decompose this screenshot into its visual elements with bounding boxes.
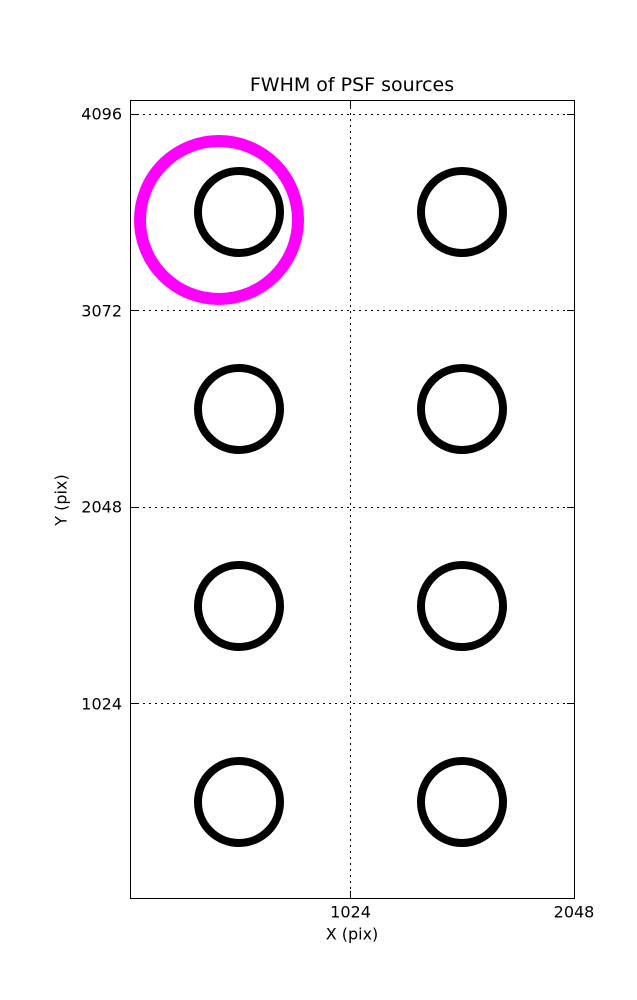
plot-area — [130, 100, 575, 899]
psf-circle — [194, 757, 284, 847]
chart-title: FWHM of PSF sources — [250, 74, 454, 96]
x-tick-bottom — [574, 891, 575, 898]
y-gridline — [131, 703, 574, 704]
highlight-circle — [134, 135, 304, 305]
y-tick-label: 4096 — [81, 105, 122, 124]
psf-circle — [194, 364, 284, 454]
x-gridline — [350, 101, 351, 898]
x-tick-top — [574, 101, 575, 108]
x-tick-label: 1024 — [330, 903, 371, 922]
y-axis-label: Y (pix) — [52, 474, 71, 525]
psf-circle — [194, 561, 284, 651]
y-tick-label: 3072 — [81, 301, 122, 320]
x-tick-top — [350, 101, 351, 108]
y-tick-left — [131, 310, 138, 311]
x-gridline — [574, 101, 575, 898]
psf-circle — [417, 757, 507, 847]
y-gridline — [131, 507, 574, 508]
y-gridline — [131, 310, 574, 311]
psf-circle — [417, 561, 507, 651]
y-gridline — [131, 114, 574, 115]
x-axis-label: X (pix) — [326, 925, 379, 944]
y-tick-label: 2048 — [81, 498, 122, 517]
y-tick-label: 1024 — [81, 694, 122, 713]
psf-circle — [417, 364, 507, 454]
x-tick-bottom — [350, 891, 351, 898]
y-tick-left — [131, 114, 138, 115]
y-tick-left — [131, 703, 138, 704]
x-tick-label: 2048 — [554, 903, 595, 922]
y-tick-left — [131, 507, 138, 508]
psf-circle — [417, 167, 507, 257]
figure: FWHM of PSF sources X (pix) Y (pix) 1024… — [0, 0, 637, 1000]
